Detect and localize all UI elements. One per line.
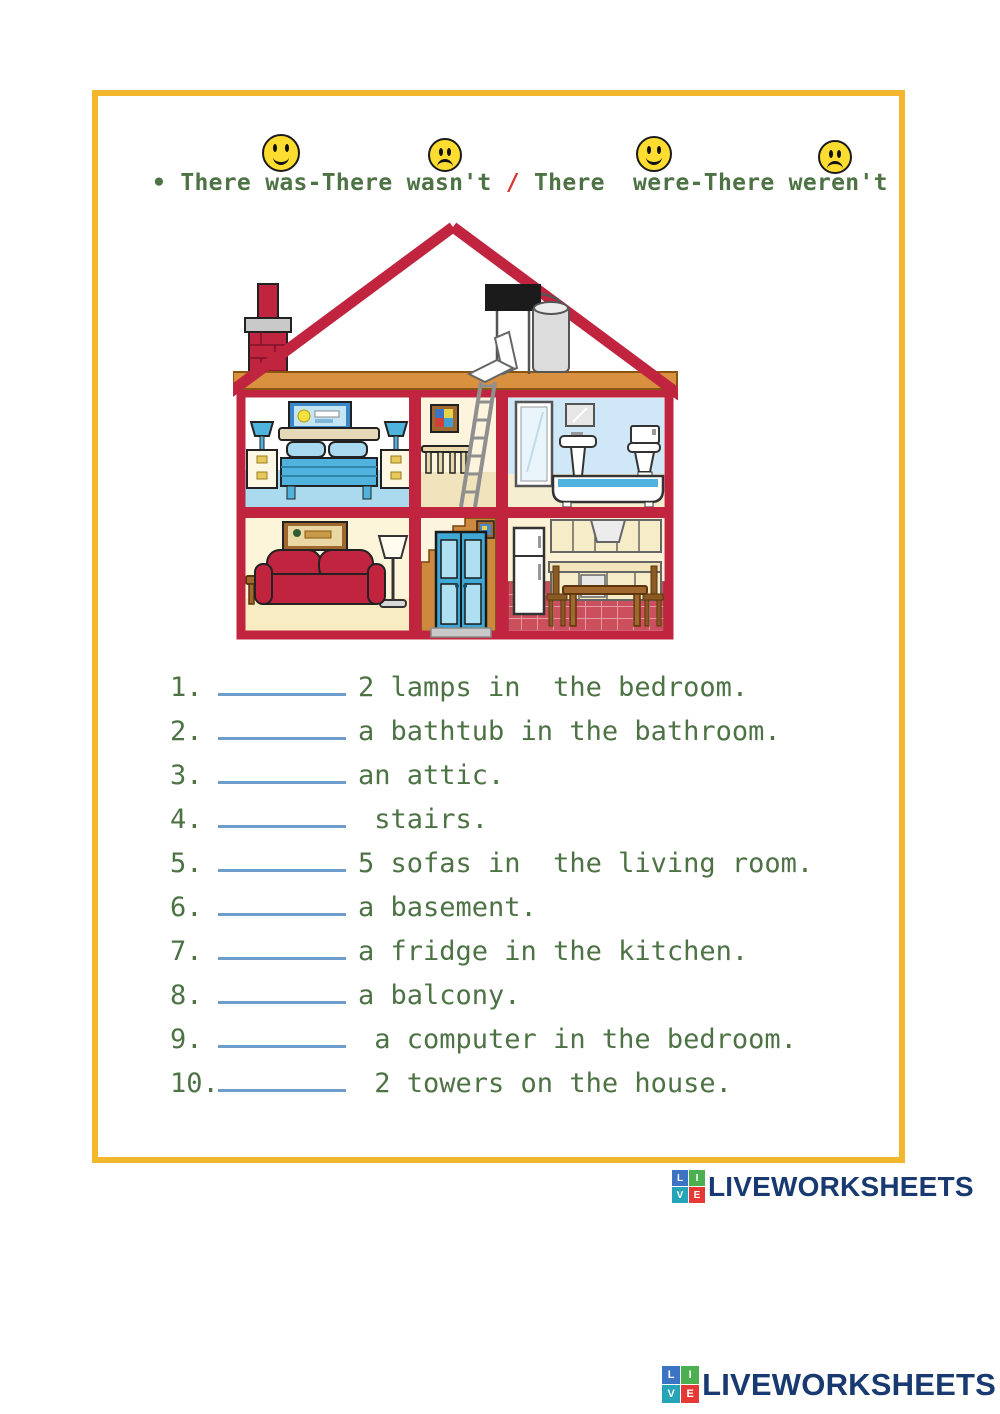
bullet: • — [152, 170, 166, 196]
answer-blank[interactable] — [218, 895, 346, 916]
bedroom-picture-icon — [289, 402, 351, 430]
logo-square: L — [672, 1170, 688, 1186]
bathroom — [508, 398, 664, 507]
list-item: 9. a computer in the bedroom. — [170, 1018, 813, 1062]
logo-square: E — [689, 1187, 705, 1203]
item-number: 9. — [170, 1018, 218, 1062]
doorstep-icon — [431, 628, 491, 637]
item-text: stairs. — [358, 804, 488, 835]
house-illustration — [233, 222, 678, 642]
item-number: 10. — [170, 1062, 218, 1106]
upper-cabinets-icon — [551, 520, 661, 552]
cooker-hood-icon — [591, 520, 625, 542]
phrase-were: There were-There weren't — [534, 170, 888, 196]
logo-wordmark: LIVEWORKSHEETS — [708, 1171, 974, 1203]
logo-square: L — [662, 1366, 680, 1384]
answer-blank[interactable] — [218, 807, 346, 828]
list-item: 1.2 lamps in the bedroom. — [170, 666, 813, 710]
item-text: a basement. — [358, 892, 537, 923]
sad-face-icon — [428, 138, 462, 172]
answer-blank[interactable] — [218, 719, 346, 740]
item-number: 1. — [170, 666, 218, 710]
list-item: 4. stairs. — [170, 798, 813, 842]
living-room — [245, 518, 409, 633]
mirror-icon — [566, 404, 594, 426]
list-item: 10. 2 towers on the house. — [170, 1062, 813, 1106]
shower-icon — [516, 402, 552, 486]
logo-square: V — [662, 1385, 680, 1403]
item-text: a balcony. — [358, 980, 521, 1011]
slash-separator: / — [506, 170, 520, 196]
liveworksheets-logo: L I V E LIVEWORKSHEETS — [672, 1170, 974, 1203]
item-number: 6. — [170, 886, 218, 930]
logo-square: E — [681, 1385, 699, 1403]
item-text: a fridge in the kitchen. — [358, 936, 748, 967]
front-door-icon — [436, 532, 486, 630]
item-text: 5 sofas in the living room. — [358, 848, 813, 879]
item-text: a computer in the bedroom. — [358, 1024, 797, 1055]
logo-wordmark: LIVEWORKSHEETS — [702, 1367, 996, 1403]
exercise-title: • There was-There wasn't / There were-Th… — [152, 170, 888, 196]
sad-face-icon — [818, 140, 852, 174]
hallway — [421, 518, 496, 633]
liveworksheets-logo-icon: L I V E — [672, 1170, 705, 1203]
list-item: 7.a fridge in the kitchen. — [170, 930, 813, 974]
cross-section-house — [233, 222, 678, 642]
answer-blank[interactable] — [218, 763, 346, 784]
exercise-list: 1.2 lamps in the bedroom. 2.a bathtub in… — [170, 666, 813, 1106]
list-item: 2.a bathtub in the bathroom. — [170, 710, 813, 754]
answer-blank[interactable] — [218, 939, 346, 960]
item-number: 2. — [170, 710, 218, 754]
item-text: an attic. — [358, 760, 504, 791]
list-item: 3.an attic. — [170, 754, 813, 798]
answer-blank[interactable] — [218, 1027, 346, 1048]
bathtub-icon — [553, 476, 663, 507]
answer-blank[interactable] — [218, 983, 346, 1004]
answer-blank[interactable] — [218, 851, 346, 872]
item-text: a bathtub in the bathroom. — [358, 716, 781, 747]
phrase-was: There was-There wasn't — [180, 170, 491, 196]
item-number: 3. — [170, 754, 218, 798]
attic-floor — [233, 372, 677, 389]
logo-square: I — [681, 1366, 699, 1384]
happy-face-icon — [262, 134, 300, 172]
item-number: 4. — [170, 798, 218, 842]
living-room-picture-icon — [283, 522, 347, 550]
fridge-icon — [514, 528, 544, 614]
list-item: 8.a balcony. — [170, 974, 813, 1018]
landing-picture-icon — [431, 405, 458, 432]
liveworksheets-logo-icon: L I V E — [662, 1366, 699, 1403]
answer-blank[interactable] — [218, 675, 346, 696]
item-number: 8. — [170, 974, 218, 1018]
answer-blank[interactable] — [218, 1071, 346, 1092]
item-text: 2 lamps in the bedroom. — [358, 672, 748, 703]
roof — [233, 227, 678, 396]
item-number: 5. — [170, 842, 218, 886]
list-item: 6.a basement. — [170, 886, 813, 930]
item-number: 7. — [170, 930, 218, 974]
happy-face-icon — [636, 136, 672, 172]
liveworksheets-logo: L I V E LIVEWORKSHEETS — [662, 1366, 996, 1403]
sofa-icon — [255, 550, 385, 604]
item-text: 2 towers on the house. — [358, 1068, 732, 1099]
logo-square: I — [689, 1170, 705, 1186]
kitchen — [508, 518, 664, 633]
logo-square: V — [672, 1187, 688, 1203]
list-item: 5.5 sofas in the living room. — [170, 842, 813, 886]
